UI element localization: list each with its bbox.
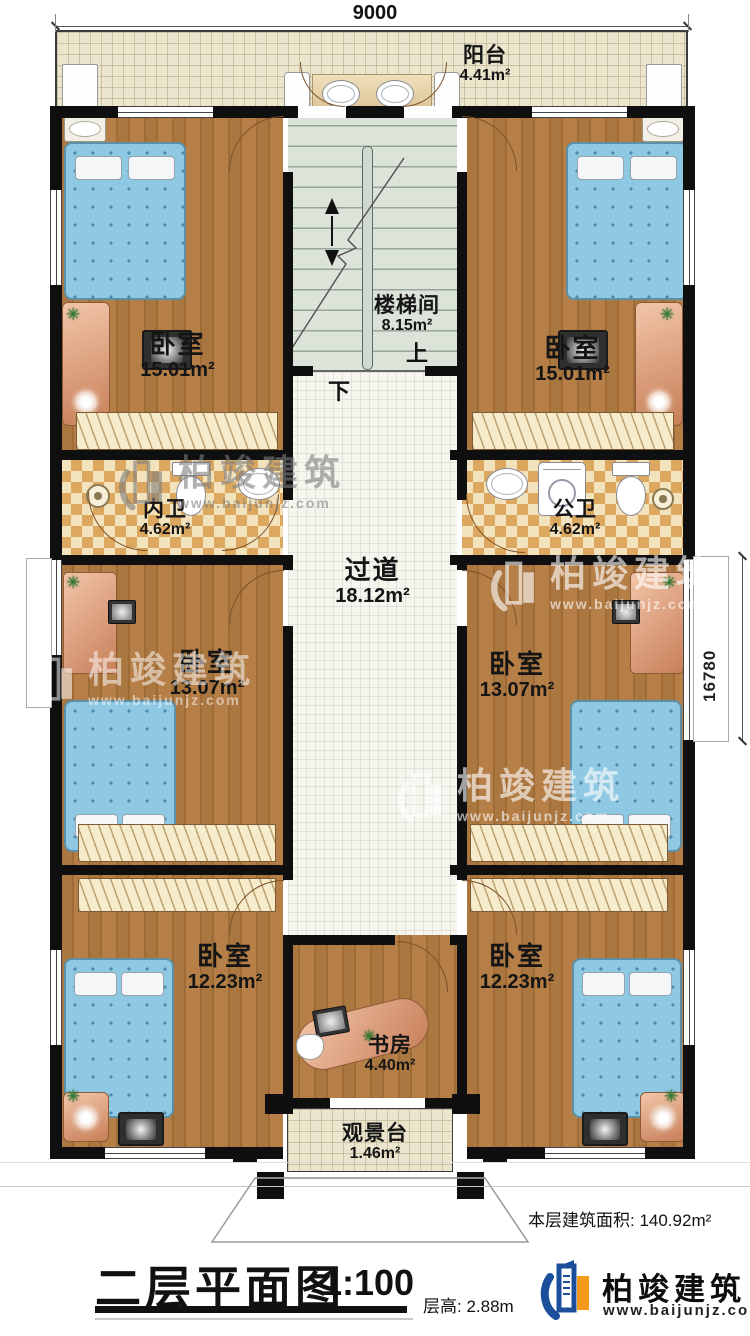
room-name: 内卫 [110, 498, 220, 521]
nightstand [642, 116, 684, 142]
plant-icon: ✳ [660, 306, 674, 323]
computer-icon [108, 600, 136, 624]
pillow [577, 156, 624, 180]
room-name: 书房 [330, 1034, 450, 1057]
brand-url: www.baijunjz.com [603, 1302, 750, 1319]
room-area: 13.07m² [462, 679, 572, 701]
wall [425, 366, 457, 376]
window [683, 950, 695, 1045]
room-area: 12.23m² [170, 971, 280, 993]
toilet-icon [612, 462, 650, 476]
window [50, 190, 62, 285]
dimension-top: 9000 [0, 2, 750, 25]
wall [283, 455, 293, 500]
pillow [121, 972, 163, 996]
wall [283, 626, 293, 880]
room-label-bath-left: 内卫 4.62m² [110, 498, 220, 539]
room-area: 12.23m² [462, 971, 572, 993]
pillow [75, 156, 122, 180]
room-area: 8.15m² [352, 317, 462, 335]
room-area: 18.12m² [310, 585, 435, 607]
room-area: 4.62m² [520, 521, 630, 539]
wall [283, 106, 293, 118]
room-label-bath-right: 公卫 4.62m² [520, 498, 630, 539]
stair-up-label: 上 [406, 336, 428, 368]
room-name: 卧室 [120, 330, 235, 359]
room-name: 公卫 [520, 498, 630, 521]
wall [283, 172, 293, 455]
pillow [128, 156, 175, 180]
bed-symbol [64, 142, 186, 300]
dimension-right: 16780 [700, 598, 720, 702]
pillow [582, 972, 624, 996]
plant-icon: ✳ [662, 574, 676, 591]
toilet-icon [172, 462, 210, 476]
chair-symbol [296, 1034, 324, 1060]
column-box [646, 64, 682, 108]
wardrobe-symbol [470, 824, 668, 862]
room-name: 卧室 [515, 334, 630, 363]
room-area: 1.46m² [300, 1145, 450, 1163]
room-area: 4.40m² [330, 1057, 450, 1075]
dimension-line [742, 556, 743, 742]
stair-down-arrow-icon [325, 250, 339, 266]
floor-height-note: 层高: 2.88m [423, 1292, 514, 1317]
tv-icon [582, 1112, 628, 1146]
room-label-study: 书房 4.40m² [330, 1034, 450, 1075]
dimension-ext-line [55, 14, 56, 32]
stair-up-arrow-icon [325, 198, 339, 214]
floor-plan-page: ✳ ✳ ✳ ✳ ✳ [0, 0, 750, 1336]
plant-icon: ✳ [66, 306, 80, 323]
room-label-bedroom-mr: 卧室 13.07m² [462, 650, 572, 701]
room-area: 4.62m² [110, 521, 220, 539]
room-name: 楼梯间 [352, 294, 462, 317]
title-underline-thin [95, 1318, 413, 1320]
room-name: 观景台 [300, 1122, 450, 1145]
room-label-bedroom-tl: 卧室 15.01m² [120, 330, 235, 381]
wardrobe-symbol [472, 412, 674, 450]
dimension-ext-line [688, 14, 689, 32]
window-sill [26, 558, 52, 708]
floor-area-note: 本层建筑面积: 140.92m² [528, 1206, 711, 1231]
wardrobe-symbol [78, 824, 276, 862]
plan-scale: 1:100 [322, 1262, 414, 1304]
plant-icon: ✳ [664, 1088, 678, 1105]
window [683, 190, 695, 285]
wall [450, 450, 695, 460]
room-name: 卧室 [462, 650, 572, 679]
room-name: 卧室 [170, 942, 280, 971]
room-name: 阳台 [420, 44, 550, 67]
room-label-stairwell: 楼梯间 8.15m² [352, 294, 462, 335]
wall [50, 450, 293, 460]
room-name: 卧室 [152, 648, 262, 677]
window [50, 950, 62, 1045]
window [545, 1147, 645, 1159]
title-underline [95, 1306, 407, 1313]
window [105, 1147, 205, 1159]
column-box [62, 64, 98, 108]
dresser-symbol [635, 302, 683, 426]
deck-pillar [265, 1094, 293, 1114]
wall [450, 865, 695, 875]
wall [50, 555, 293, 565]
room-label-bedroom-ml: 卧室 13.07m² [152, 648, 262, 699]
room-label-balcony: 阳台 4.41m² [420, 44, 550, 85]
nightstand [64, 116, 106, 142]
dresser-symbol [640, 1092, 686, 1142]
pillow [629, 972, 671, 996]
plant-icon: ✳ [66, 574, 80, 591]
wall [450, 555, 695, 565]
room-area: 13.07m² [152, 677, 262, 699]
stair-arrow-line [331, 216, 333, 246]
room-label-bedroom-tr: 卧室 15.01m² [515, 334, 630, 385]
room-label-view-deck: 观景台 1.46m² [300, 1122, 450, 1163]
room-area: 15.01m² [515, 363, 630, 385]
computer-icon [612, 600, 640, 624]
room-name: 卧室 [462, 942, 572, 971]
room-label-bedroom-bl: 卧室 12.23m² [170, 942, 280, 993]
plant-icon: ✳ [66, 1088, 80, 1105]
brand-logo-icon [540, 1258, 598, 1320]
entry-steps-outline [200, 1155, 560, 1247]
window [532, 106, 627, 118]
bed-symbol [566, 142, 688, 300]
wall [283, 935, 395, 945]
wardrobe-symbol [76, 412, 278, 450]
wall [283, 936, 293, 1098]
corridor-floor [288, 372, 457, 935]
room-area: 4.41m² [420, 67, 550, 85]
door-opening [298, 106, 346, 118]
door-opening [404, 106, 452, 118]
dimension-line [55, 26, 688, 27]
tv-icon [118, 1112, 164, 1146]
pillow [74, 972, 116, 996]
room-label-bedroom-br: 卧室 12.23m² [462, 942, 572, 993]
wall [50, 865, 293, 875]
shower-icon [652, 488, 674, 510]
pillow [630, 156, 677, 180]
room-label-corridor: 过道 18.12m² [310, 556, 435, 607]
stair-down-label: 下 [328, 374, 350, 406]
deck-pillar [452, 1094, 480, 1114]
wall [283, 366, 313, 376]
room-name: 过道 [310, 556, 435, 585]
room-area: 15.01m² [120, 359, 235, 381]
window [118, 106, 213, 118]
